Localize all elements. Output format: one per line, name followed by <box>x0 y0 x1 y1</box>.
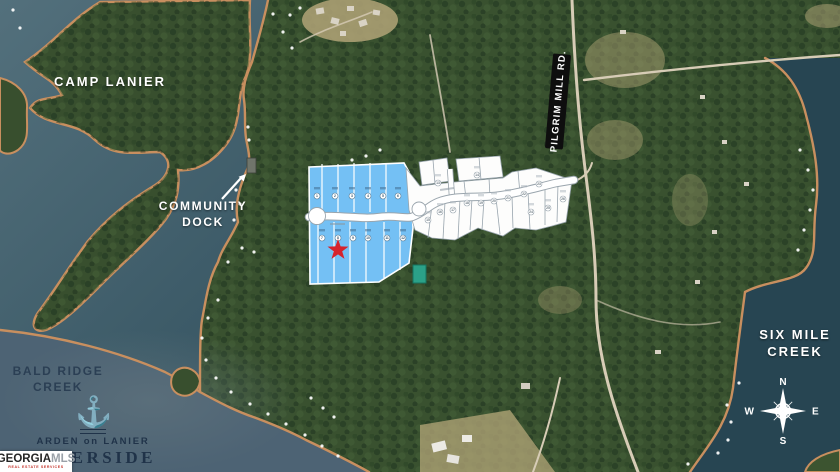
lot-size-text <box>349 187 355 189</box>
lot-number-text: 10 <box>366 236 370 240</box>
lot-size-text <box>450 201 456 203</box>
watermark-brand: GEORGIA <box>0 453 51 465</box>
lot-size-text <box>545 199 551 201</box>
lot-number-text: 18 <box>465 201 469 205</box>
six-mile-creek-label-line2: CREEK <box>759 344 831 361</box>
six-mile-creek-label: SIX MILE CREEK <box>759 327 831 361</box>
lot-size-text <box>435 174 441 176</box>
bald-ridge-creek-label: BALD RIDGE CREEK <box>13 364 104 395</box>
lot-size-text <box>491 192 497 194</box>
lot-number-text: 16 <box>438 210 442 214</box>
lot-size-text <box>505 189 511 191</box>
lot-number-text: 23 <box>537 182 541 186</box>
lot-size-text <box>536 175 542 177</box>
lot-size-text <box>395 187 401 189</box>
lot-number-text: 4 <box>367 194 369 198</box>
lot-size-text <box>464 194 470 196</box>
lot-number-text: 2 <box>334 194 336 198</box>
watermark-tagline: REAL ESTATE SERVICES <box>8 465 63 470</box>
lot-size-text <box>319 229 325 231</box>
compass-east-label: E <box>812 407 819 418</box>
camp-lanier-label: CAMP LANIER <box>54 74 166 91</box>
georgia-mls-wordmark: GEORGIAMLS <box>0 454 75 465</box>
lot-size-text <box>474 166 480 168</box>
lot-number-text: 26 <box>561 197 565 201</box>
watermark-brand-suffix: MLS <box>51 453 75 465</box>
community-dock-label-line2: DOCK <box>159 215 247 231</box>
lot-number-text: 15 <box>426 218 430 222</box>
lot-size-text <box>425 211 431 213</box>
lot-number-text: 5 <box>382 194 384 198</box>
bald-ridge-creek-label-line2: CREEK <box>13 380 104 396</box>
lot-number-text: 9 <box>352 236 354 240</box>
lot-size-text <box>478 194 484 196</box>
lot-size-text <box>521 185 527 187</box>
lot-number-text: 21 <box>506 196 510 200</box>
lot-size-text <box>335 229 341 231</box>
lot-number-text: 25 <box>546 206 550 210</box>
community-name: ARDEN on LANIER <box>18 436 168 447</box>
listing-map: 1234567891011121314151617181920212223242… <box>0 0 840 472</box>
lot-number-text: 20 <box>492 199 496 203</box>
lot-size-text <box>314 187 320 189</box>
road-name-text <box>330 223 345 225</box>
lot-number-text: 3 <box>351 194 353 198</box>
lot-size-text <box>365 187 371 189</box>
lot-size-text <box>365 229 371 231</box>
lot-number-text: 17 <box>451 208 455 212</box>
lot-size-text <box>400 229 406 231</box>
community-dock-structure <box>247 158 256 173</box>
logo-divider <box>80 429 106 434</box>
lot-number-text: 7 <box>321 236 323 240</box>
lot-number-text: 13 <box>436 181 440 185</box>
plat-available-region <box>309 163 413 284</box>
lot-size-text <box>560 190 566 192</box>
lot-size-text <box>528 203 534 205</box>
islet-bald-ridge <box>171 368 200 396</box>
lot-number-text: 19 <box>479 201 483 205</box>
green-roof-building <box>413 265 426 283</box>
compass-south-label: S <box>780 436 787 447</box>
lot-size-text <box>350 229 356 231</box>
georgia-mls-watermark: GEORGIAMLS REAL ESTATE SERVICES <box>0 451 72 472</box>
lot-number-text: 12 <box>401 236 405 240</box>
lot-size-text <box>384 229 390 231</box>
six-mile-creek-label-line1: SIX MILE <box>759 327 831 344</box>
compass-west-label: W <box>745 407 755 418</box>
community-dock-label-line1: COMMUNITY <box>159 199 247 215</box>
lot-size-text <box>437 203 443 205</box>
lot-size-text <box>332 187 338 189</box>
bald-ridge-creek-label-line1: BALD RIDGE <box>13 364 104 380</box>
islet-left-shore <box>0 78 27 154</box>
lot-number-text: 1 <box>316 194 318 198</box>
lot-number-text: 14 <box>475 173 479 177</box>
lot-size-text <box>380 187 386 189</box>
lot-number-text: 24 <box>529 210 533 214</box>
lot-number-text: 22 <box>522 192 526 196</box>
compass-north-label: N <box>779 377 786 388</box>
community-dock-label: COMMUNITY DOCK <box>159 199 247 230</box>
lot-number-text: 6 <box>397 194 399 198</box>
anchor-icon: ⚓ <box>19 398 169 428</box>
lot-number-text: 11 <box>385 236 389 240</box>
